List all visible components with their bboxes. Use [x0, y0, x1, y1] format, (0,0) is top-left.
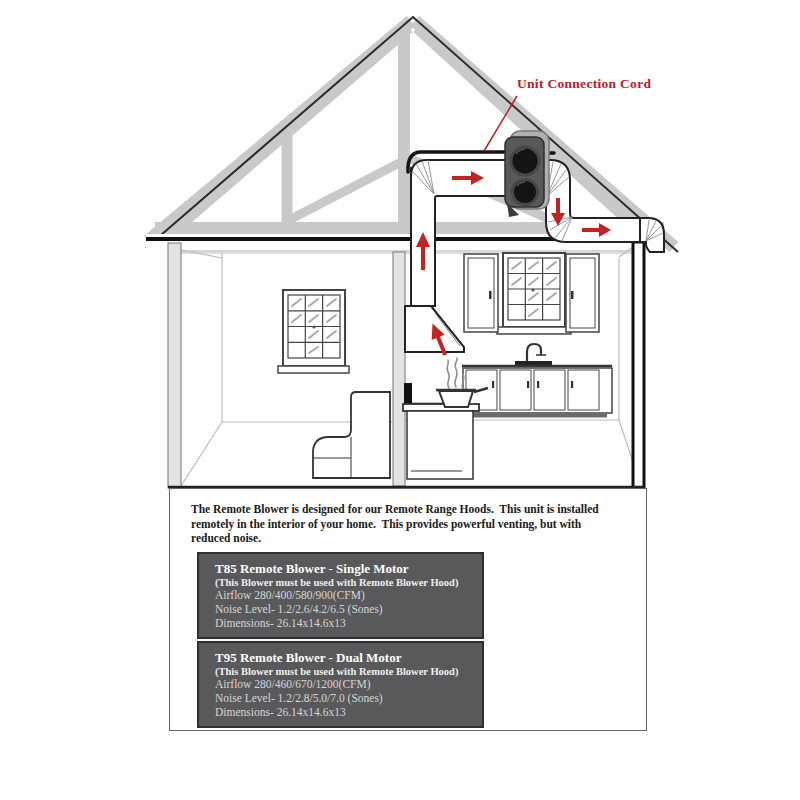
product-noise: Noise Level- 1.2/2.8/5.0/7.0 (Sones)	[215, 692, 476, 706]
toe-kick	[470, 413, 607, 418]
left-strut	[291, 159, 407, 219]
product-note: (This Blower must be used with Remote Bl…	[215, 576, 476, 589]
page: Unit Connection Cord The Remote Blower i…	[0, 0, 800, 800]
product-airflow: Airflow 280/460/670/1200(CFM)	[215, 678, 476, 692]
island-counter	[403, 404, 479, 479]
partition-wall	[393, 252, 405, 486]
window-sill	[497, 327, 571, 334]
house-diagram	[0, 0, 800, 500]
left-wall	[168, 243, 181, 488]
fan-motor-icon	[513, 180, 538, 205]
upper-cabinet-right	[566, 254, 599, 332]
window-sill	[278, 366, 349, 373]
steam	[447, 358, 464, 389]
product-airflow: Airflow 280/400/580/900(CFM)	[215, 589, 476, 603]
description-line: The Remote Blower is designed for our Re…	[191, 502, 599, 517]
product-card-t95: T95 Remote Blower - Dual Motor (This Blo…	[197, 641, 484, 728]
living-room-window	[278, 290, 349, 373]
upper-cabinet-left	[464, 254, 498, 332]
unit-connection-cord-label: Unit Connection Cord	[517, 76, 651, 92]
fan-motor-icon	[511, 147, 539, 175]
cabinet-handle	[571, 291, 574, 299]
description-line: reduced noise.	[191, 531, 599, 546]
cabinet-handle	[489, 291, 492, 299]
remote-blower-unit	[505, 131, 549, 217]
lower-cabinets	[462, 366, 612, 418]
product-noise: Noise Level- 1.2/2.6/4.2/6.5 (Sones)	[215, 603, 476, 617]
product-card-t85: T85 Remote Blower - Single Motor (This B…	[197, 552, 484, 639]
product-title: T85 Remote Blower - Single Motor	[215, 561, 476, 576]
kitchen-window	[497, 253, 571, 334]
description-line: remotely in the interior of your home. T…	[191, 517, 599, 532]
product-note: (This Blower must be used with Remote Bl…	[215, 665, 476, 678]
sink-faucet	[515, 344, 552, 366]
right-wall	[633, 242, 644, 488]
info-panel: The Remote Blower is designed for our Re…	[169, 488, 647, 731]
product-dimensions: Dimensions- 26.14x14.6x13	[215, 617, 476, 631]
description-text: The Remote Blower is designed for our Re…	[191, 502, 599, 546]
product-title: T95 Remote Blower - Dual Motor	[215, 650, 476, 665]
sofa	[313, 392, 390, 478]
product-dimensions: Dimensions- 26.14x14.6x13	[215, 706, 476, 720]
stove-backsplash	[404, 383, 412, 403]
